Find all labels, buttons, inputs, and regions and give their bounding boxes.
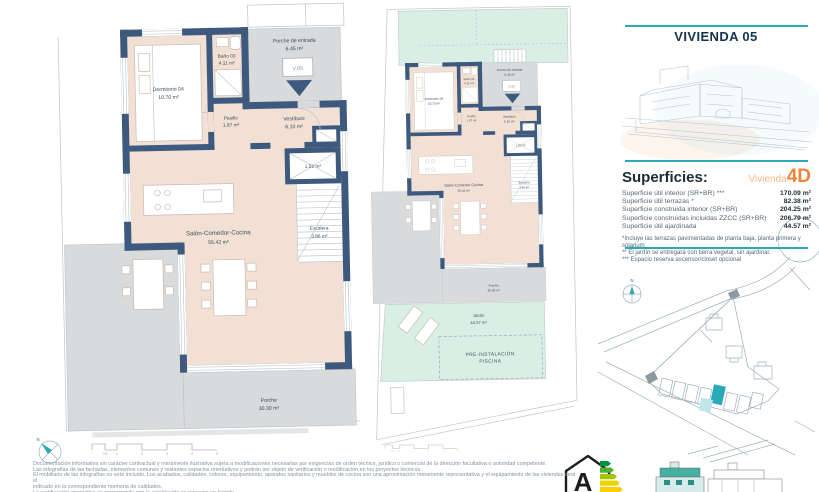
accent-rule-top <box>625 25 808 27</box>
superficies-heading: Superficies: <box>622 169 708 186</box>
plot-plan: Jardín 44.57 m² PRE-INSTALACIÓN PISCINA <box>368 6 578 444</box>
site-north-label: N <box>630 278 633 283</box>
superficie-row: Superficie construida interior (SR+BR)20… <box>622 206 811 214</box>
accent-rule-bottom <box>625 247 808 249</box>
row-value: 44.57 m² <box>784 223 811 231</box>
superficies-rows: Superficie útil interior (SR+BR) ***170.… <box>622 190 811 231</box>
row-value: 206.79 m² <box>780 215 811 223</box>
row-label: Superficie útil ajardinada <box>622 223 696 231</box>
footnote: ** El jardín se entregará con tierra veg… <box>622 250 811 257</box>
superficie-row: Superficie útil ajardinada44.57 m² <box>622 223 811 231</box>
building-sketch <box>620 65 819 160</box>
vivienda-tag: Vivienda4D <box>749 166 811 188</box>
vivienda-label: Vivienda <box>749 174 787 185</box>
room-label-jardin: Jardín <box>473 313 485 318</box>
elevation-sketches <box>656 440 782 492</box>
row-value: 170.09 m² <box>780 190 811 198</box>
footnote: *** Espacio reserva ascensor/closet opci… <box>622 257 811 264</box>
page-title: VIVIENDA 05 <box>622 29 810 44</box>
north-compass: N <box>36 437 61 463</box>
plan-sheet: V.05 Porche de entrada 6.45 m² Dormitori… <box>0 0 819 492</box>
superficies-panel: Superficies: Vivienda4D Superficie útil … <box>622 166 811 264</box>
colored-elevation <box>656 462 704 492</box>
superficie-row: Superficie útil interior (SR+BR) ***170.… <box>622 190 811 198</box>
accent-rule-middle <box>625 160 808 162</box>
compass-north-label: N <box>36 437 39 442</box>
garden: Jardín 44.57 m² PRE-INSTALACIÓN PISCINA <box>379 302 546 414</box>
superficie-row: Superficie construidas incluidas ZZCC (S… <box>622 215 811 223</box>
main-plan <box>58 3 361 438</box>
row-label: Superficie útil interior (SR+BR) *** <box>622 190 725 198</box>
legal-disclaimer: Documentación informativa sin carácter c… <box>33 462 578 492</box>
row-label: Superficie útil terrazas * <box>622 198 694 206</box>
superficie-row: Superficie útil terrazas *82.38 m² <box>622 198 811 206</box>
pool-label-line2: PISCINA <box>479 358 501 364</box>
row-value: 82.38 m² <box>784 198 811 206</box>
row-label: Superficie construida interior (SR+BR) <box>622 206 737 214</box>
site-north-compass: N <box>623 278 641 303</box>
energy-bars <box>600 461 623 492</box>
site-plot <box>645 289 779 414</box>
area-jardin: 44.57 m² <box>470 320 487 325</box>
rear-garden-band <box>398 8 568 65</box>
line-elevation <box>708 463 782 492</box>
superficies-footnotes: *Incluye las terrazas pavimentadas de pl… <box>622 236 811 264</box>
site-detached-houses <box>700 314 772 379</box>
vivienda-code: 4D <box>787 166 811 187</box>
row-label: Superficie construidas incluidas ZZCC (S… <box>622 215 766 223</box>
row-value: 204.25 m² <box>780 206 811 214</box>
site-highlighted-unit <box>699 384 726 412</box>
